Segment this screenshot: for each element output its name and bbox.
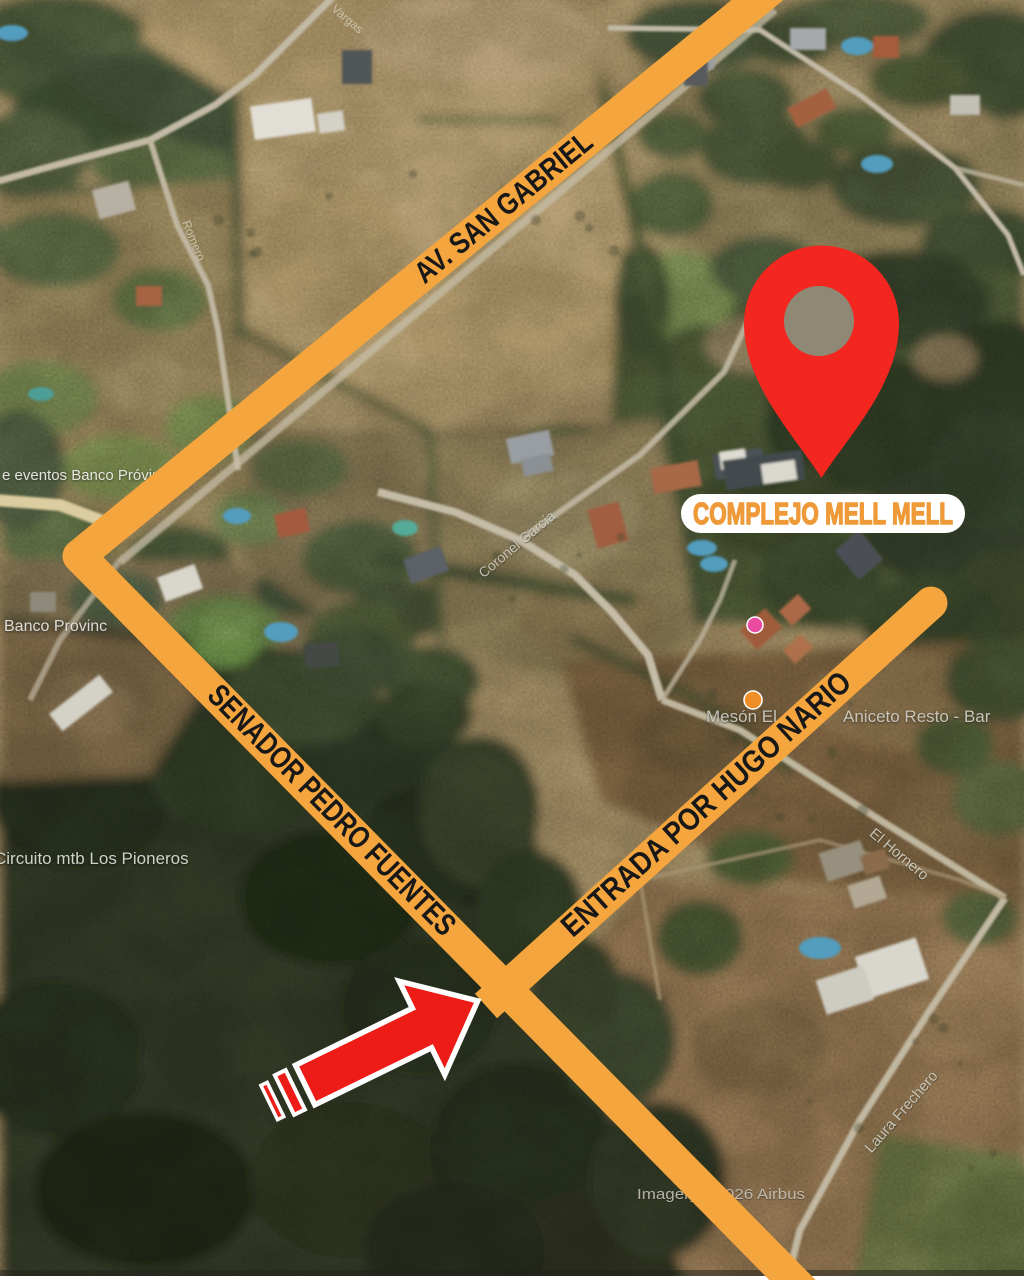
svg-text:Circuito mtb Los Pioneros: Circuito mtb Los Pioneros	[0, 849, 189, 868]
svg-text:Mesón El: Mesón El	[706, 707, 777, 726]
svg-text:Banco Provinc: Banco Provinc	[4, 618, 107, 635]
svg-text:Aniceto Resto - Bar: Aniceto Resto - Bar	[843, 707, 991, 726]
svg-text:COMPLEJO MELL MELL: COMPLEJO MELL MELL	[693, 496, 953, 531]
